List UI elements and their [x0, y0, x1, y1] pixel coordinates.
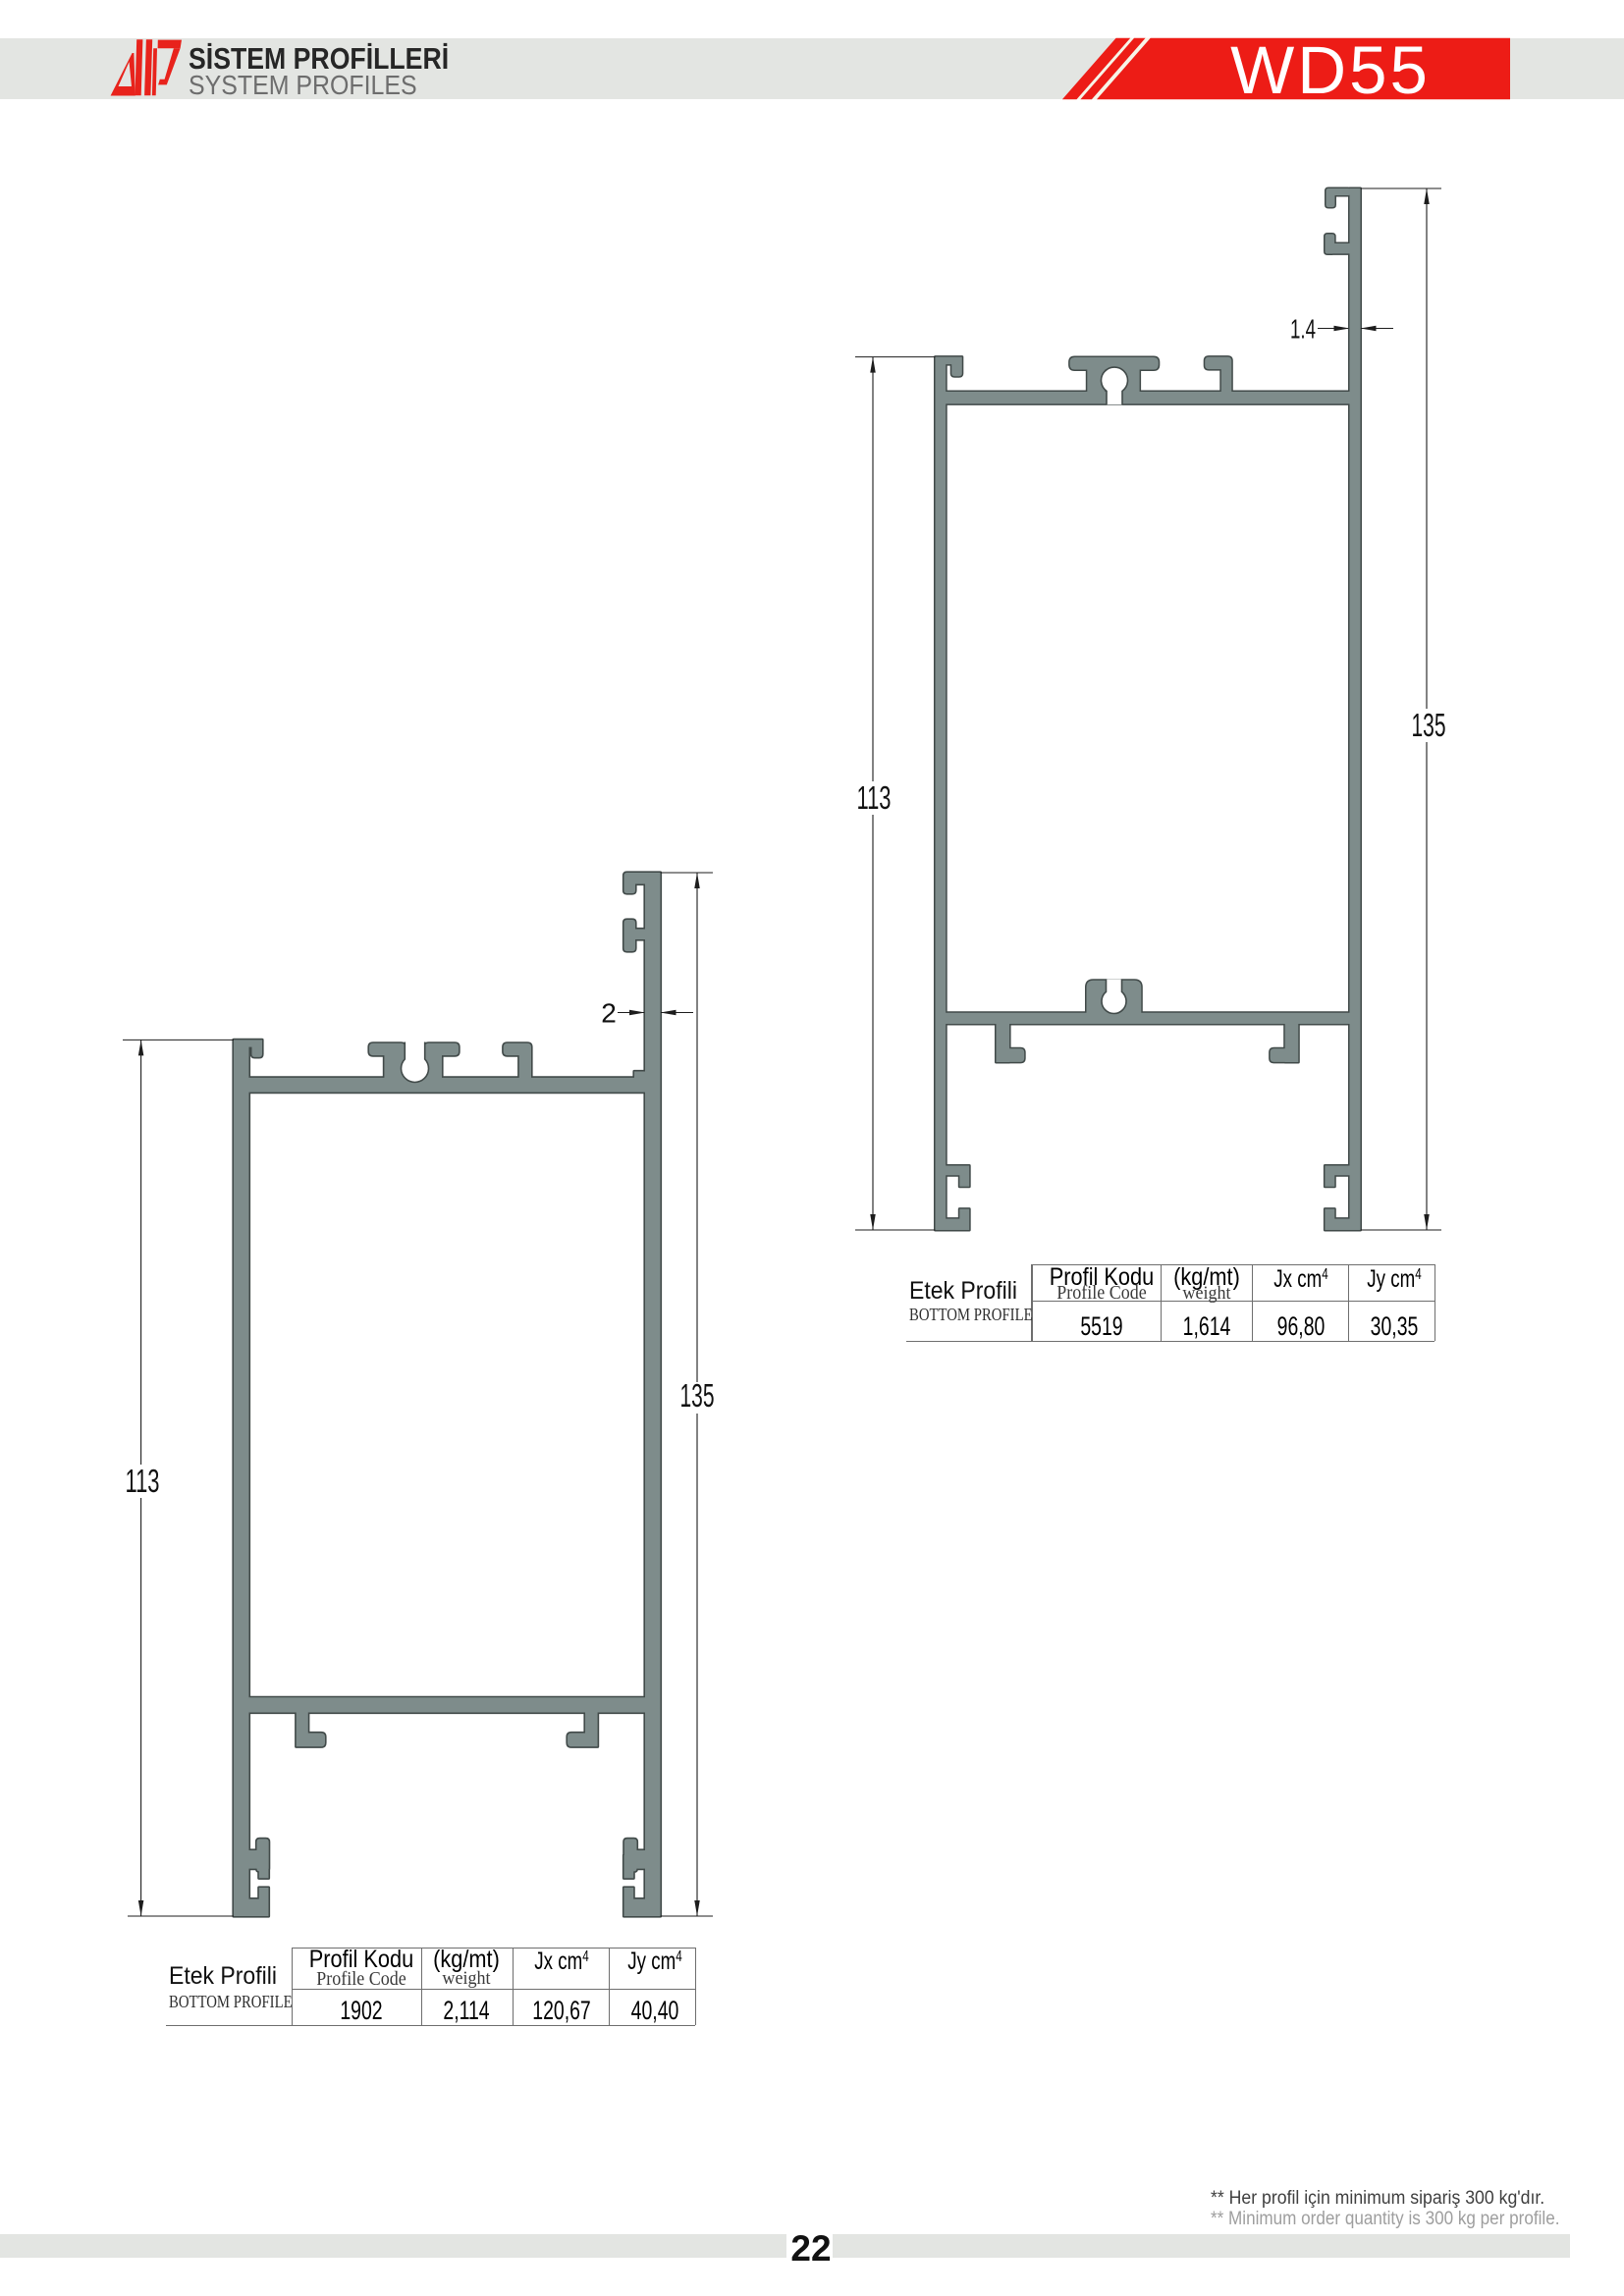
svg-text:135: 135 — [680, 1377, 715, 1414]
svg-text:1.4: 1.4 — [1290, 314, 1316, 345]
svg-text:2: 2 — [601, 998, 617, 1029]
svg-text:113: 113 — [126, 1463, 160, 1499]
svg-text:113: 113 — [857, 779, 892, 816]
svg-text:135: 135 — [1412, 707, 1446, 743]
